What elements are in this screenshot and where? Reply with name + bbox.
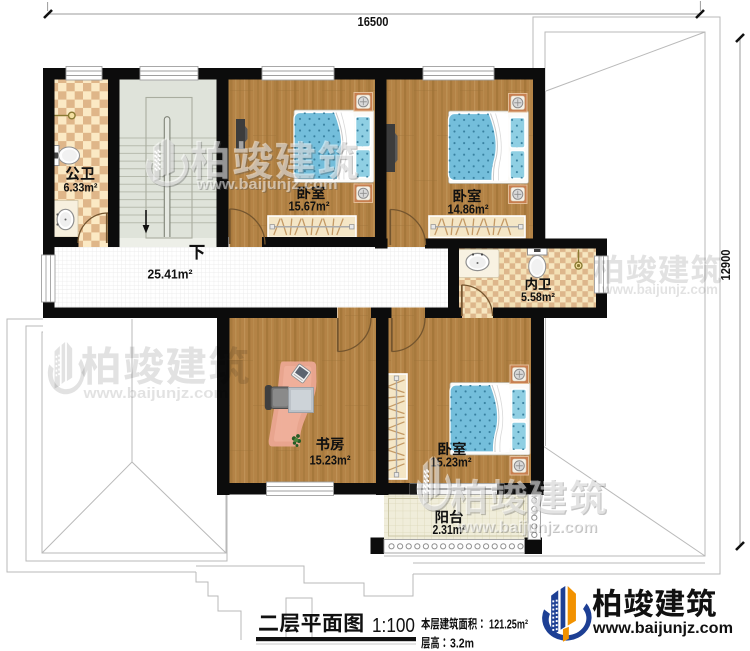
- svg-text:www.baijunjz.com: www.baijunjz.com: [592, 620, 733, 637]
- svg-text:www.baijunjz.com: www.baijunjz.com: [456, 519, 597, 536]
- svg-text:16500: 16500: [358, 14, 389, 29]
- svg-text:5.58m²: 5.58m²: [521, 292, 555, 304]
- svg-text:14.86m²: 14.86m²: [448, 203, 489, 217]
- svg-text:12900: 12900: [718, 250, 733, 281]
- svg-text:1:100: 1:100: [372, 614, 415, 637]
- svg-text:15.23m²: 15.23m²: [310, 454, 351, 468]
- svg-text:6.33m²: 6.33m²: [64, 180, 98, 194]
- svg-text:25.41m²: 25.41m²: [148, 268, 193, 282]
- svg-text:15.67m²: 15.67m²: [289, 200, 330, 214]
- svg-text:3.2m: 3.2m: [450, 637, 474, 651]
- svg-text:www.baijunjz.com: www.baijunjz.com: [82, 385, 228, 402]
- svg-text:121.25m²: 121.25m²: [489, 618, 528, 632]
- svg-text:www.baijunjz.com: www.baijunjz.com: [195, 176, 337, 193]
- svg-text:www.baijunjz.com: www.baijunjz.com: [601, 281, 718, 297]
